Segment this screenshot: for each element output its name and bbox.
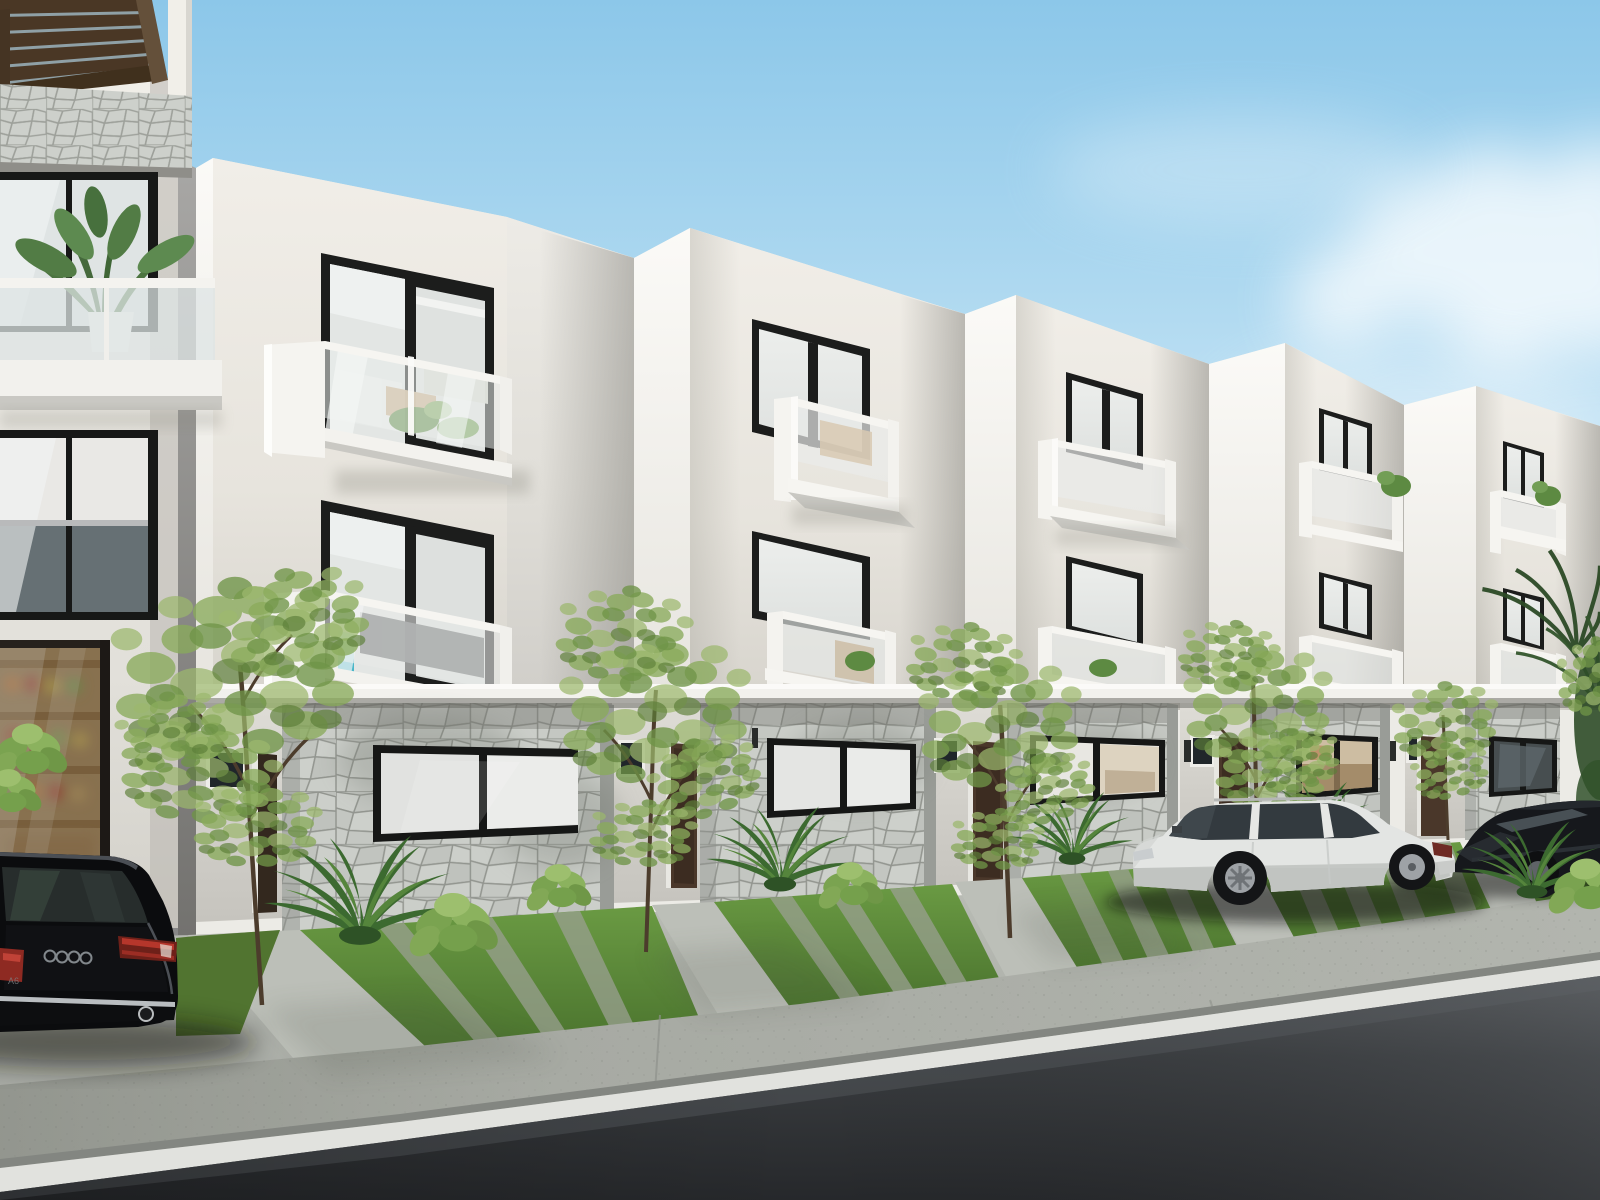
svg-text:A6: A6 bbox=[8, 976, 19, 986]
